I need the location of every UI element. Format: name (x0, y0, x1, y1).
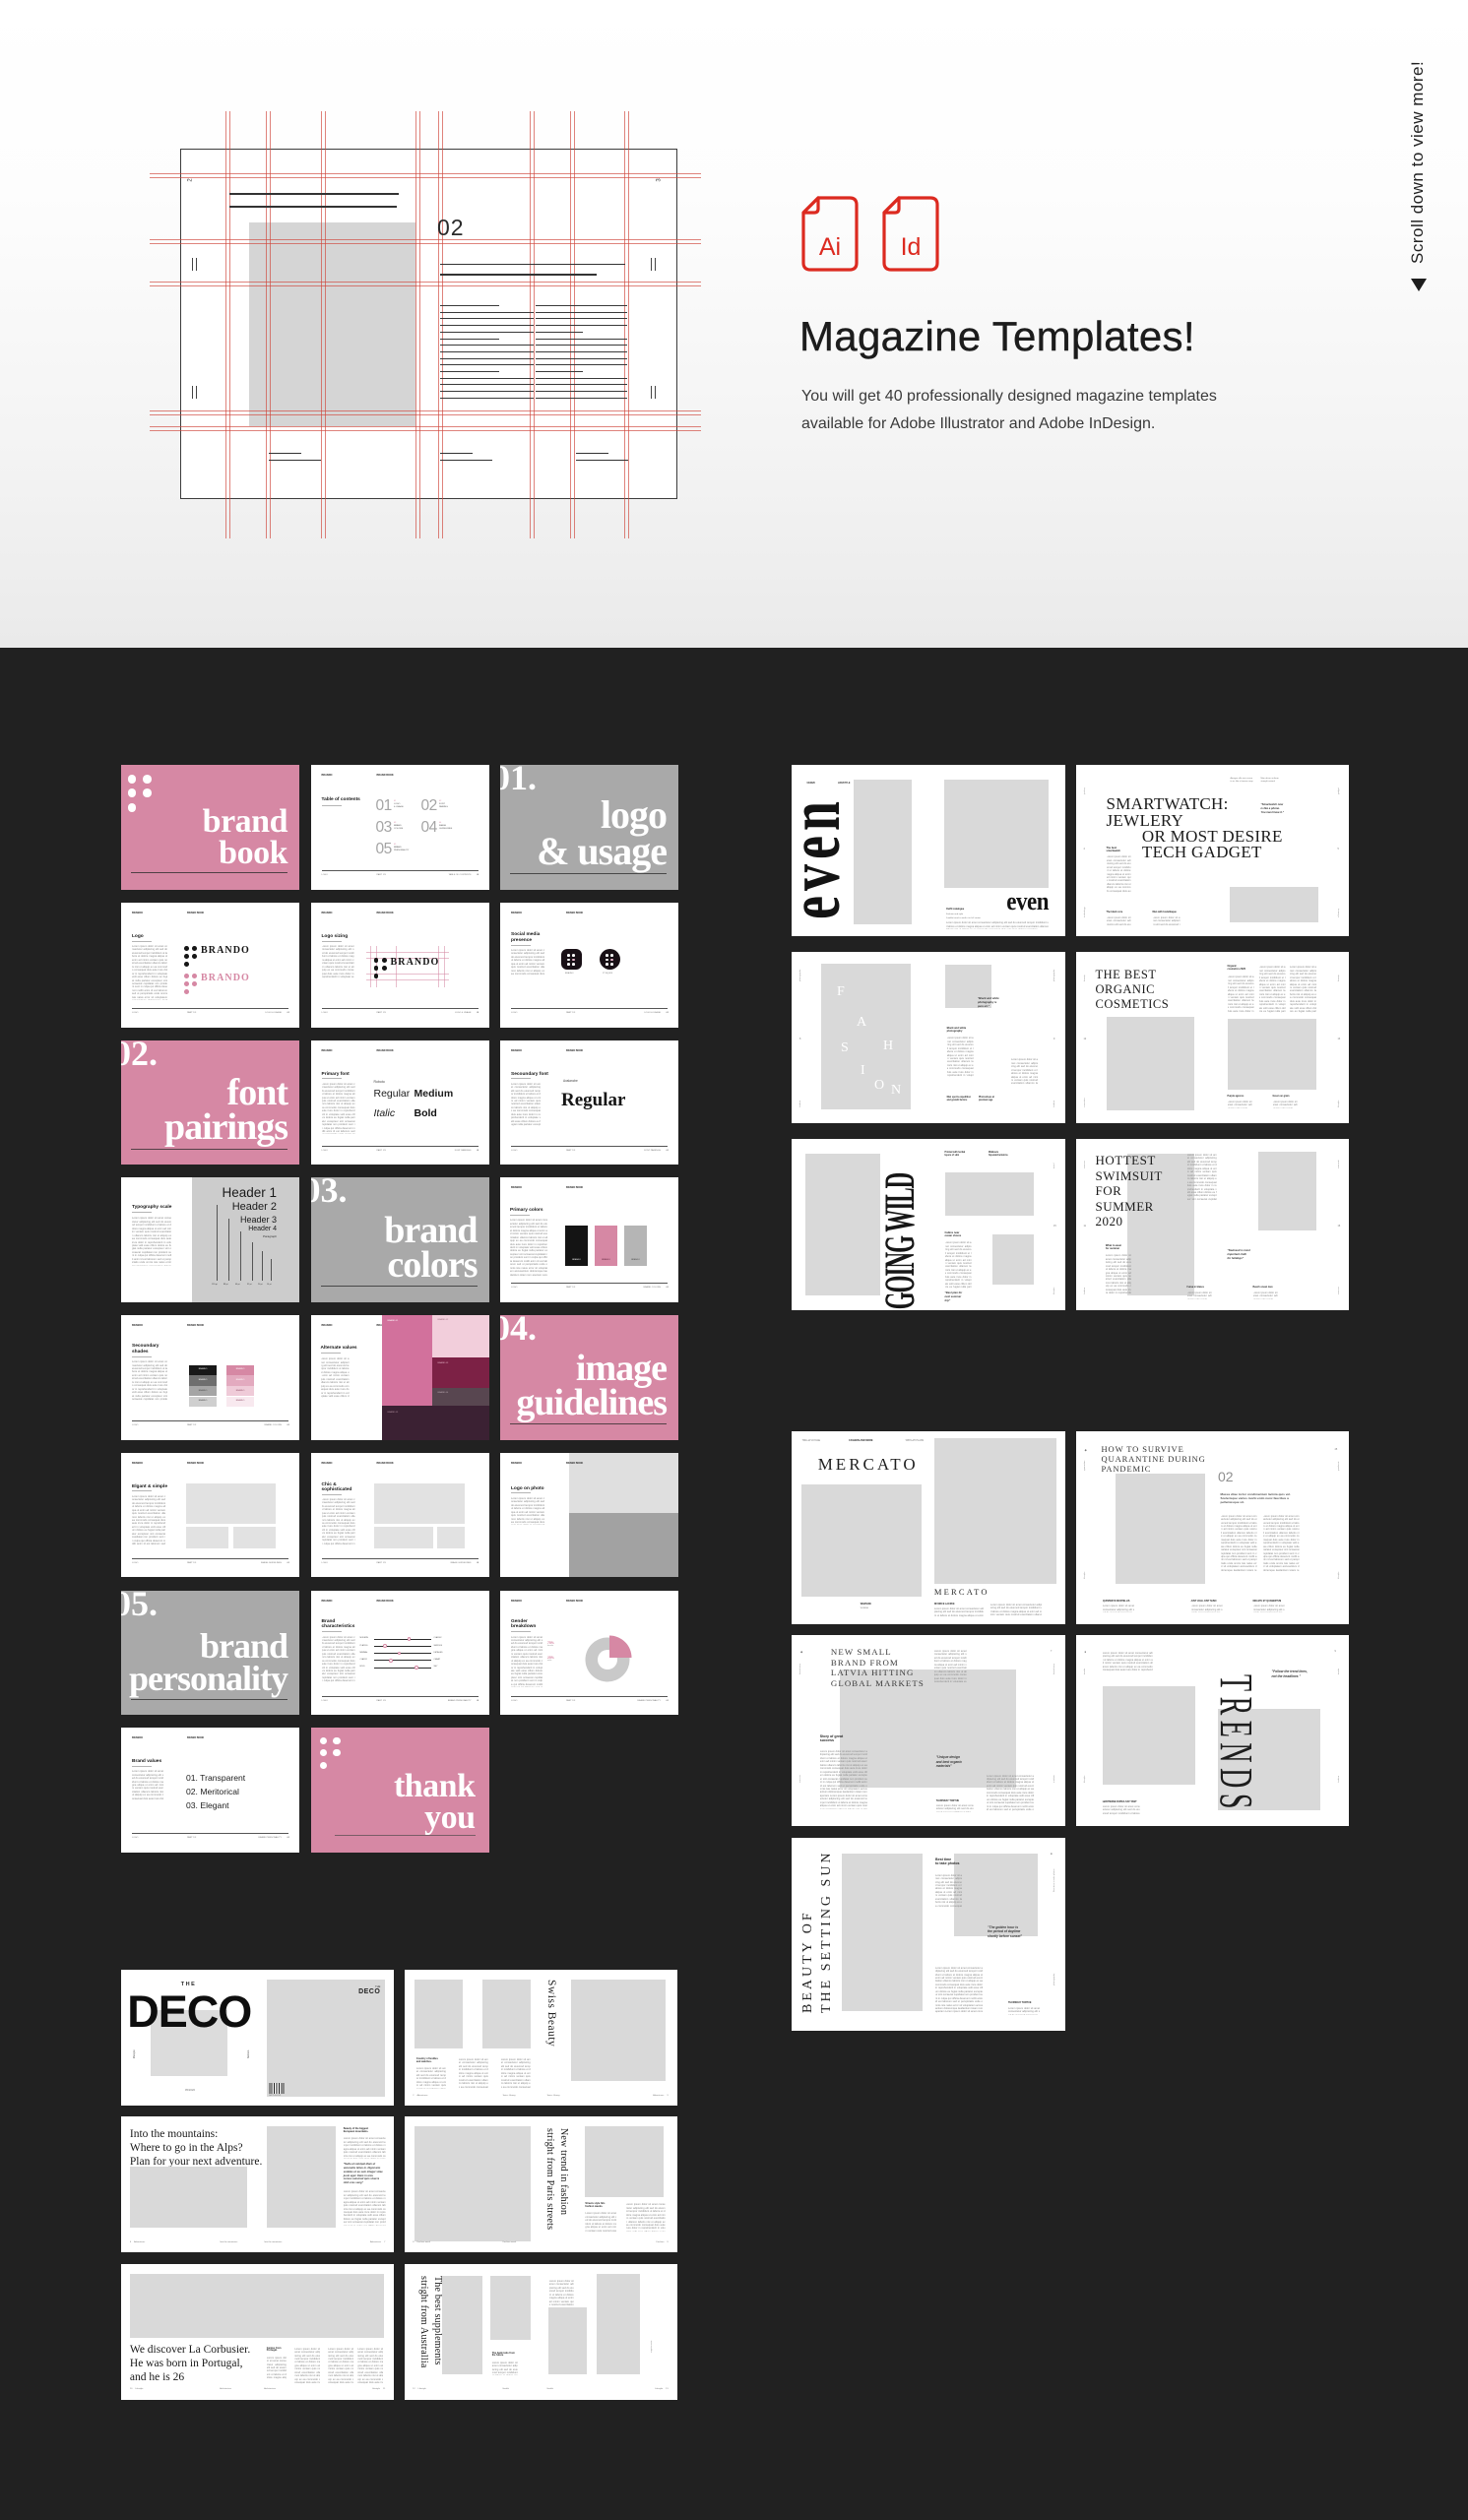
svg-text:Id: Id (901, 233, 922, 261)
svg-text:Ai: Ai (819, 233, 841, 261)
